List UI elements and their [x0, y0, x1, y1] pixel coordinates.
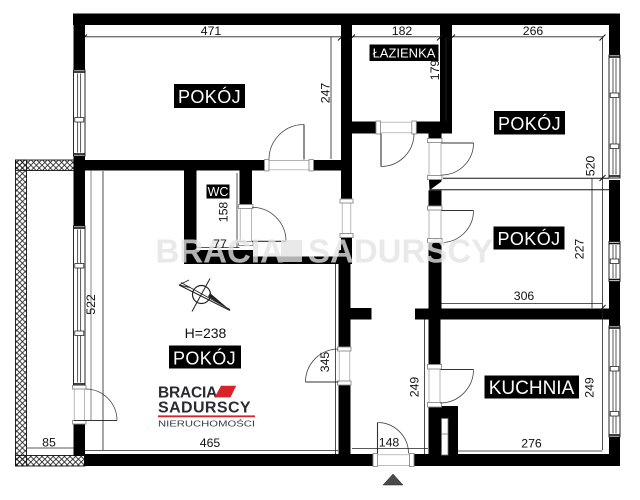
svg-text:465: 465 — [200, 436, 221, 450]
svg-text:522: 522 — [84, 294, 98, 315]
svg-text:POKÓJ: POKÓJ — [173, 348, 236, 369]
svg-text:182: 182 — [392, 24, 413, 38]
svg-text:266: 266 — [523, 24, 544, 38]
svg-text:WC: WC — [208, 185, 229, 199]
svg-text:POKÓJ: POKÓJ — [498, 113, 561, 134]
svg-text:85: 85 — [42, 436, 56, 450]
svg-text:POKÓJ: POKÓJ — [178, 86, 241, 107]
svg-text:345: 345 — [318, 352, 332, 373]
svg-text:306: 306 — [514, 289, 535, 303]
svg-text:148: 148 — [379, 436, 400, 450]
svg-text:249: 249 — [408, 377, 422, 398]
svg-text:158: 158 — [217, 202, 231, 223]
svg-text:471: 471 — [201, 24, 222, 38]
svg-text:249: 249 — [583, 377, 597, 398]
svg-text:SADURSCY: SADURSCY — [158, 400, 251, 417]
svg-text:H=238: H=238 — [185, 325, 227, 341]
svg-text:179: 179 — [428, 60, 442, 81]
svg-text:NIERUCHOMOŚCI: NIERUCHOMOŚCI — [158, 418, 255, 429]
svg-text:227: 227 — [573, 239, 587, 260]
svg-text:276: 276 — [521, 437, 542, 451]
svg-text:ŁAZIENKA: ŁAZIENKA — [373, 46, 436, 61]
svg-text:520: 520 — [584, 156, 598, 177]
svg-text:77: 77 — [213, 237, 227, 251]
svg-text:SADURSCY: SADURSCY — [308, 233, 493, 270]
svg-text:POKÓJ: POKÓJ — [497, 228, 560, 249]
svg-text:247: 247 — [319, 83, 333, 104]
svg-text:KUCHNIA: KUCHNIA — [489, 378, 575, 399]
